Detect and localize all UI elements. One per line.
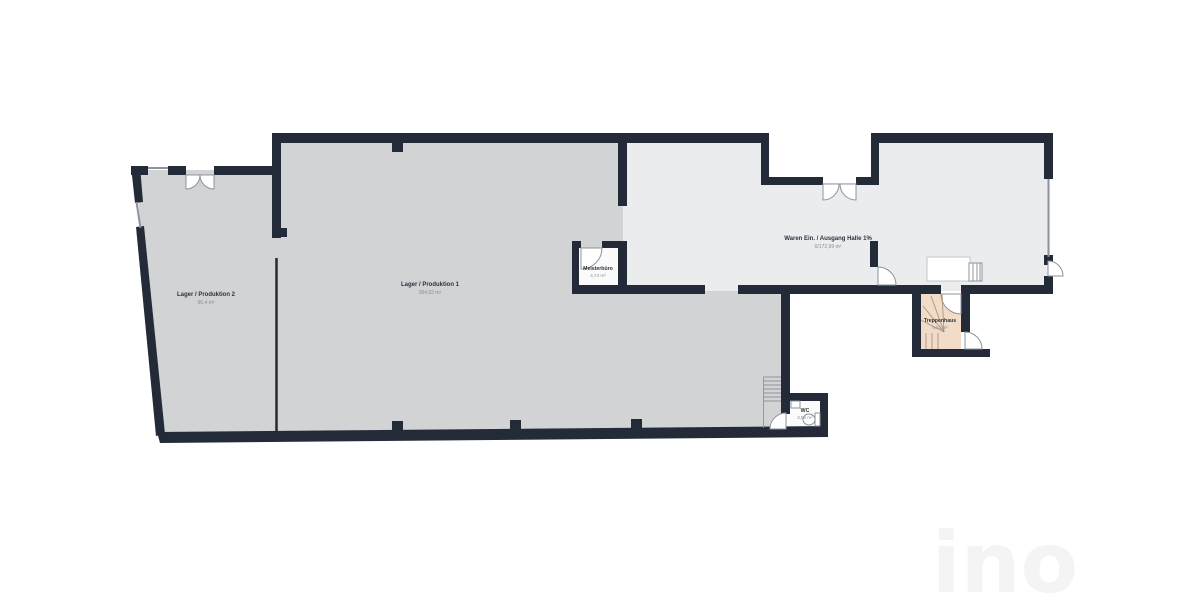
halle-label: Waren Ein. / Ausgang Halle 1% (784, 236, 872, 242)
sink-icon (791, 401, 800, 408)
pillar-bottom-2 (510, 420, 521, 429)
pillar-top (392, 143, 403, 152)
door-halle-right-exit (1048, 261, 1063, 276)
wall-lager1-halle-divider (618, 133, 627, 206)
wc-label: WC (801, 408, 810, 414)
lager2-area: 96,4 m² (198, 300, 215, 306)
halle-room-fill (623, 137, 1049, 291)
wall-lager2-lager1-divider (272, 133, 281, 238)
wall-notch-bottom-left (761, 177, 823, 185)
wall-hall-bottom-1 (572, 285, 705, 294)
watermark-logo: ino (932, 514, 1078, 600)
floorplan-drawing: Lager / Produktion 2 96,4 m² Lager / Pro… (0, 0, 1200, 600)
pillar-bottom-3 (631, 419, 642, 428)
wall-trepp-bottom (912, 349, 990, 357)
halle-area: 0/172,99 m² (815, 244, 842, 250)
lager2-label: Lager / Produktion 2 (177, 292, 236, 298)
pillar-divider (279, 228, 287, 237)
wall-meister-left (572, 241, 579, 294)
wall-top-right (871, 133, 1053, 143)
door-treppenhaus-exit (965, 332, 982, 349)
meisterbuero-label: Meisterbüro (583, 266, 613, 272)
wall-meister-top-right (602, 241, 618, 248)
hall-landing-steps (969, 263, 982, 281)
wall-lager2-top-2 (168, 166, 186, 175)
treppenhaus-area: 5,51 m² (932, 325, 948, 330)
meisterbuero-area: 4,74 m² (590, 273, 606, 278)
wall-hall-bottom-2 (738, 285, 941, 294)
lager1-area: 364,53 m² (419, 290, 442, 296)
wall-top-main (272, 133, 769, 143)
wall-trepp-right (961, 294, 970, 332)
wall-lager2-top-1 (131, 166, 148, 175)
treppenhaus-label: Treppenhaus (924, 318, 956, 324)
wall-hall-bottom-3 (961, 285, 1053, 294)
hall-landing (927, 257, 970, 281)
pillar-bottom-1 (392, 421, 403, 430)
wc-area: 3,55 m² (797, 415, 813, 420)
wall-right-doorblock-bottom (1044, 276, 1053, 286)
wall-hall-partition (870, 241, 878, 267)
wall-right-upper (1044, 133, 1053, 179)
floorplan-page: Lager / Produktion 2 96,4 m² Lager / Pro… (0, 0, 1200, 600)
lager1-label: Lager / Produktion 1 (401, 282, 460, 288)
wall-meister-right (618, 241, 627, 294)
wall-trepp-left (912, 285, 921, 357)
wall-lager2-top-3 (214, 166, 272, 175)
